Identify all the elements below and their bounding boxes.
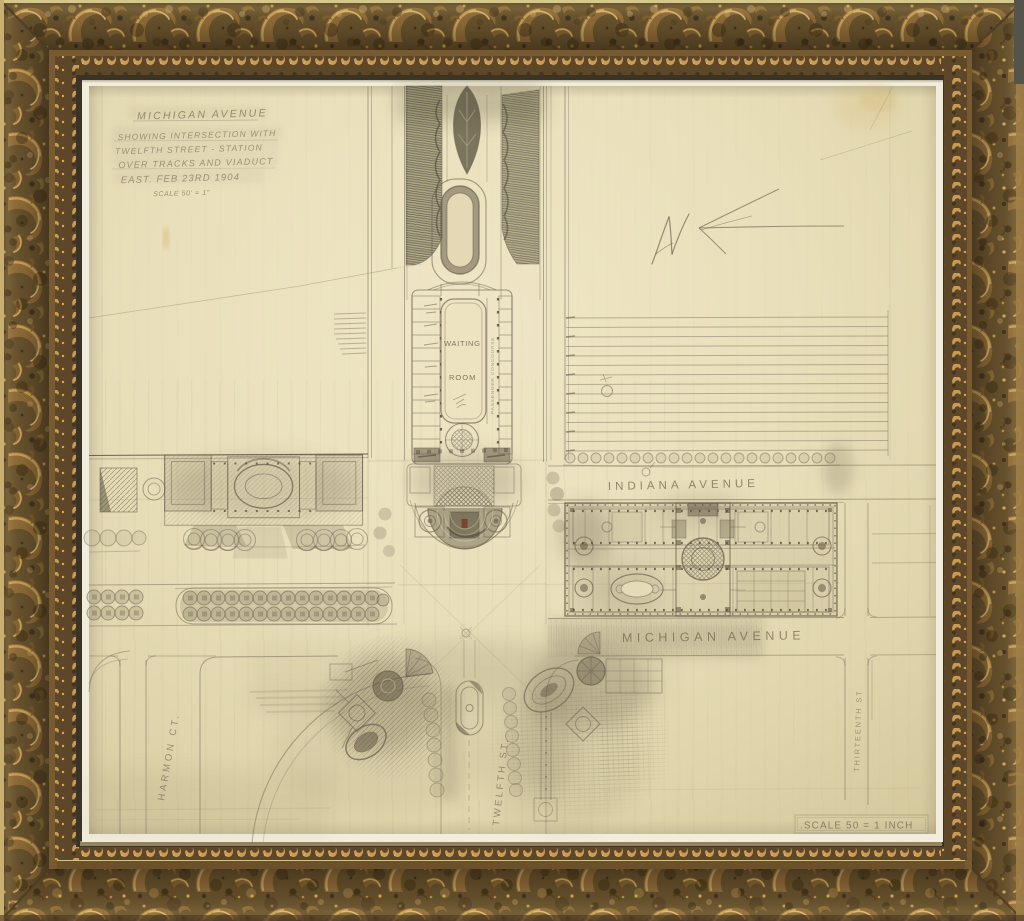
svg-text:WAITING: WAITING (444, 339, 481, 348)
svg-text:SCALE 50' = 1": SCALE 50' = 1" (153, 190, 210, 198)
svg-text:ROOM: ROOM (449, 373, 476, 382)
svg-text:.SCALE 50 = 1 INCH: .SCALE 50 = 1 INCH (800, 821, 913, 832)
svg-text:PASSENGER CONCOURSE: PASSENGER CONCOURSE (490, 337, 496, 414)
